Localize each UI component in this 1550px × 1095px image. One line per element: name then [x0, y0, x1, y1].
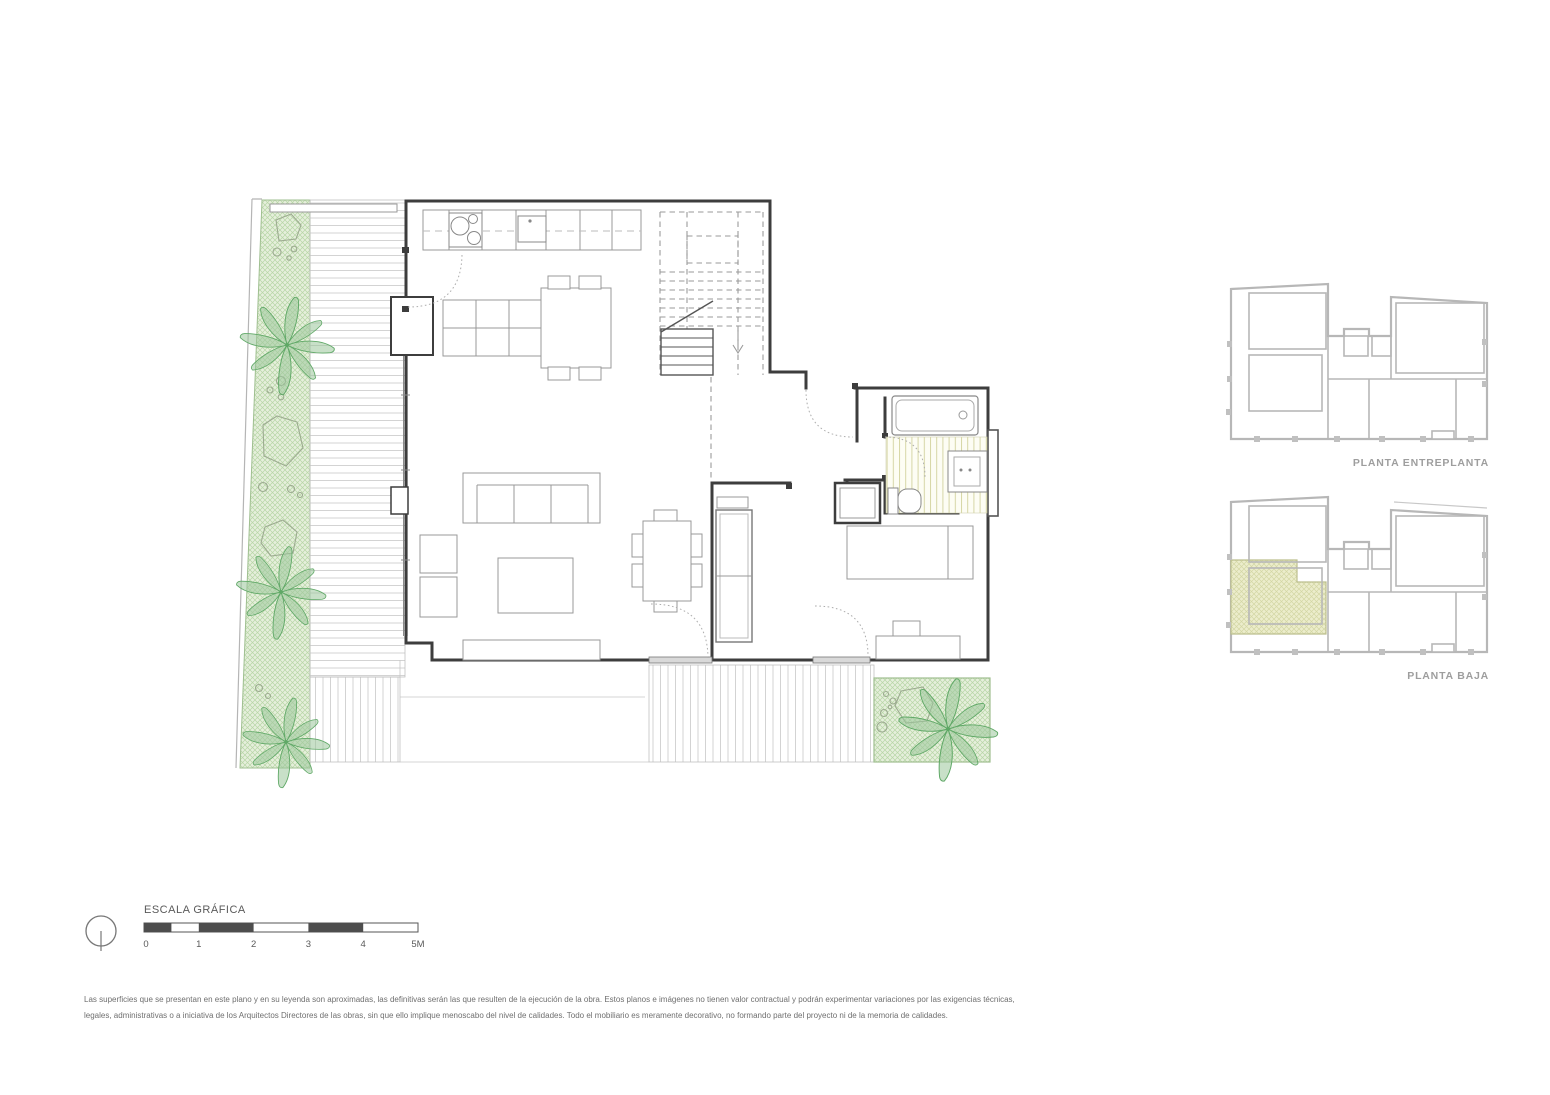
desk — [876, 636, 960, 659]
chair — [691, 564, 702, 587]
chair — [632, 534, 643, 557]
bed — [847, 526, 973, 579]
staircase — [660, 212, 763, 480]
door-jambs — [402, 247, 888, 489]
drawing-sheet: PLANTA ENTREPLANTA PLANTA BAJA — [0, 0, 1550, 1095]
key-plan-entreplanta — [1226, 284, 1487, 442]
chair — [632, 564, 643, 587]
baja-label: PLANTA BAJA — [1407, 670, 1489, 682]
chair — [654, 510, 677, 521]
hallway-wardrobe — [716, 497, 752, 642]
sink-icon — [518, 216, 546, 242]
pillar — [391, 297, 433, 355]
main-floor-plan — [235, 199, 998, 789]
sideboard — [463, 640, 600, 660]
sofa — [463, 473, 600, 523]
scale-tick: 3 — [306, 939, 311, 950]
scale-bar: ESCALA GRÁFICA 0 1 2 3 4 5M — [86, 903, 425, 951]
key-plan-baja — [1226, 497, 1487, 655]
garden-strip — [240, 200, 310, 768]
orientation-symbol — [86, 916, 116, 951]
lower-terrace-deck — [649, 665, 874, 762]
bathroom — [886, 396, 987, 514]
wall-pilaster — [988, 430, 998, 516]
coffee-table — [498, 558, 573, 613]
scale-tick: 0 — [143, 939, 148, 950]
disclaimer-text: Las superficies que se presentan en este… — [84, 992, 1042, 1024]
chair — [691, 534, 702, 557]
armchair — [420, 535, 457, 573]
pillar — [391, 487, 408, 514]
side-deck — [310, 200, 405, 677]
scale-tick: 1 — [196, 939, 201, 950]
dining-table — [643, 521, 691, 601]
threshold — [813, 657, 870, 663]
toilet — [888, 488, 898, 514]
scale-tick: 5M — [411, 939, 424, 950]
patio-boundary — [400, 660, 649, 762]
scale-tick: 4 — [361, 939, 366, 950]
threshold — [649, 657, 712, 663]
entry-closet — [835, 483, 880, 523]
scale-title: ESCALA GRÁFICA — [144, 903, 246, 916]
bedroom — [847, 526, 973, 659]
pergola-beam — [270, 204, 397, 212]
armchair — [420, 577, 457, 617]
scale-tick: 2 — [251, 939, 256, 950]
dining-area — [632, 510, 702, 612]
entreplanta-label: PLANTA ENTREPLANTA — [1353, 457, 1489, 469]
bathtub — [892, 396, 978, 435]
living-room — [420, 473, 600, 660]
desk-chair — [893, 621, 920, 636]
island-table — [541, 288, 611, 368]
floor-plan-canvas: PLANTA ENTREPLANTA PLANTA BAJA — [0, 0, 1550, 1095]
kitchen — [423, 210, 641, 380]
